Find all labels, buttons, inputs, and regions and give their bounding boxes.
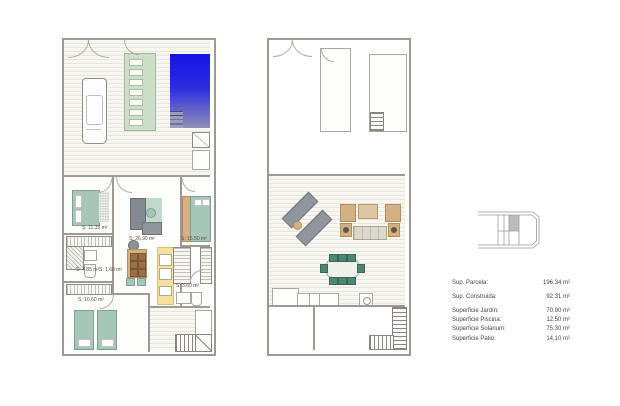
legend-row: Superficie Patio: 14.10 m²	[452, 336, 570, 343]
ground-floor-plan: S: 11.35 m² S: 4.85 m² S: 1.60 m² S: 10.…	[62, 38, 216, 356]
car-cabin	[86, 95, 103, 125]
rug	[99, 192, 109, 222]
room-area-label: S: 26.90 m²	[129, 237, 155, 242]
stepping-stone	[129, 89, 143, 96]
legend-label: Superficie Jardín:	[452, 308, 499, 315]
stair-turn	[195, 334, 212, 352]
dining-table	[127, 249, 147, 278]
patio-stairs	[392, 307, 407, 350]
dining-chair	[338, 254, 347, 262]
legend-row: Superficie Jardín: 70.90 m²	[452, 308, 570, 315]
bed	[74, 310, 94, 350]
barbecue-burner	[363, 297, 371, 305]
stepping-stone	[129, 99, 143, 106]
patio-stairs	[175, 334, 197, 352]
dining-chair	[138, 269, 146, 277]
wall-bathroom-left	[64, 281, 112, 283]
plant	[343, 227, 349, 233]
legend-row: Superficie Piscina: 12.50 m²	[452, 317, 570, 324]
dining-chair	[138, 261, 146, 269]
stepping-stone	[129, 109, 143, 116]
dining-chair	[357, 264, 365, 273]
bed-pillow	[194, 199, 202, 206]
shower-tray	[192, 150, 210, 170]
patio-wall	[269, 305, 405, 307]
solarium-deck	[269, 176, 405, 305]
dining-chair	[347, 277, 356, 285]
stair-landing	[195, 310, 212, 336]
bed-pillow	[101, 339, 114, 347]
swimming-pool	[170, 54, 210, 128]
dining-chair	[130, 253, 138, 261]
legend-value: 14.10 m²	[546, 336, 570, 343]
room-area-label: S: 15.50 m²	[181, 237, 207, 242]
sink	[84, 250, 97, 261]
site-key-plan	[478, 209, 542, 251]
dining-chair	[130, 269, 138, 277]
stairwell-steps	[370, 112, 384, 131]
stepping-stone	[129, 79, 143, 86]
wardrobe	[66, 284, 112, 295]
entrance-arc	[273, 40, 293, 57]
garden-path	[124, 53, 156, 131]
dining-chair	[329, 254, 338, 262]
side-table	[293, 221, 302, 230]
stepping-stone	[129, 69, 143, 76]
legend-row: Sup. Construida: 92.31 m²	[452, 294, 570, 301]
kitchen-stove	[159, 268, 172, 280]
armchair	[340, 204, 356, 222]
bed	[72, 190, 100, 226]
wall-bedroom-tl	[64, 233, 112, 235]
bed-pillow	[75, 210, 82, 223]
stepping-stone	[129, 119, 143, 126]
room-area-label: S: 1.60 m²	[99, 268, 122, 273]
legend-label: Superficie Patio:	[452, 336, 496, 343]
legend-value: 70.90 m²	[546, 308, 570, 315]
site-key-plan-drawing	[478, 209, 542, 251]
legend-row: Superficie Solarium: 75.30 m²	[452, 326, 570, 333]
legend-label: Superficie Piscina:	[452, 317, 501, 324]
dining-chair	[338, 277, 347, 285]
legend-value: 75.30 m²	[546, 326, 570, 333]
planter	[388, 223, 400, 237]
dining-chair	[130, 261, 138, 269]
sink	[176, 292, 191, 304]
planter	[340, 223, 352, 237]
armchair	[385, 204, 401, 222]
bed-pillow	[75, 195, 82, 208]
room-area-label: S: 3.60 m²	[176, 284, 199, 289]
plant	[391, 227, 397, 233]
wardrobe	[173, 247, 191, 284]
pouf	[146, 208, 156, 218]
legend-row: Sup. Parcela: 196.34 m²	[452, 280, 570, 287]
dining-chair	[347, 254, 356, 262]
dining-chair	[138, 253, 146, 261]
room-area-label: S: 11.35 m²	[82, 226, 107, 231]
bed-pillow	[202, 199, 210, 206]
area-legend: Sup. Parcela: 196.34 m² Sup. Construida:…	[452, 280, 570, 345]
floor-plan-sheet: S: 11.35 m² S: 4.85 m² S: 1.60 m² S: 10.…	[0, 0, 620, 406]
legend-label: Superficie Solarium:	[452, 326, 506, 333]
dining-chair	[137, 278, 146, 286]
outdoor-sofa	[353, 226, 387, 240]
kitchen-appliance	[159, 286, 172, 296]
outdoor-shower	[192, 132, 210, 148]
dining-chair	[329, 277, 338, 285]
bed-pillow	[78, 339, 91, 347]
entrance-arc	[292, 40, 312, 57]
storeroom-wall	[313, 307, 315, 350]
legend-value: 196.34 m²	[543, 280, 570, 287]
dining-chair	[320, 264, 328, 273]
wall-left-column	[112, 177, 114, 293]
sofa-seat	[142, 222, 162, 235]
pool-steps	[170, 111, 183, 128]
patio-stairs	[369, 335, 394, 350]
kitchen-sink	[159, 254, 172, 266]
kitchen-counter	[157, 247, 174, 305]
coffee-table	[358, 204, 378, 219]
wall-bedroom-bl-top	[112, 293, 150, 295]
legend-label: Sup. Construida:	[452, 294, 497, 301]
car-hood-line	[86, 129, 101, 138]
upper-floor-plan	[267, 38, 411, 356]
toilet	[191, 292, 202, 306]
legend-value: 92.31 m²	[546, 294, 570, 301]
dining-chair	[126, 278, 135, 286]
legend-label: Sup. Parcela:	[452, 280, 488, 287]
stepping-stone	[129, 59, 143, 66]
car	[82, 78, 107, 144]
legend-value: 12.50 m²	[546, 317, 570, 324]
roof-void	[320, 48, 351, 132]
bed	[97, 310, 117, 350]
room-area-label: S: 4.85 m²	[76, 268, 99, 273]
